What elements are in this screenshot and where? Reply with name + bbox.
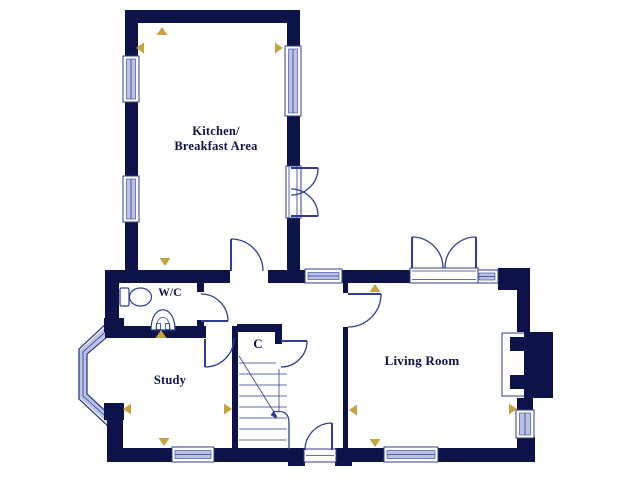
kitchen-french-doors-icon	[286, 166, 318, 218]
living-east-wall	[517, 398, 533, 411]
living-bottom-window-icon	[384, 447, 438, 462]
dimension-arrow-left-icon	[349, 405, 357, 416]
room-label-wc: W/C	[150, 286, 190, 301]
basin-icon	[151, 310, 175, 330]
room-label-study: Study	[140, 373, 200, 388]
fireplace-icon	[502, 332, 553, 398]
floor-plan: Kitchen/ Breakfast Area W/C Study C Livi…	[0, 0, 640, 480]
dimension-arrow-right-icon	[224, 404, 232, 415]
kitchen-west-wall	[125, 222, 138, 270]
living-sidelight-window-icon	[476, 270, 498, 283]
living-ne-corner	[498, 268, 530, 290]
kitchen-window-west-upper-icon	[123, 56, 139, 102]
study-door-icon	[205, 338, 234, 367]
study-window-icon	[172, 447, 214, 462]
cupboard-top-wall	[237, 324, 282, 332]
kitchen-window-east-icon	[285, 46, 301, 116]
kitchen-window-west-lower-icon	[123, 176, 139, 222]
stairs-icon	[239, 356, 289, 450]
living-north-wall	[342, 270, 412, 283]
windows	[123, 46, 534, 462]
toilet-icon	[120, 288, 152, 306]
dimension-arrow-down-icon	[160, 258, 171, 266]
wc-door-icon	[201, 294, 228, 321]
kitchen-east-wall	[287, 116, 300, 166]
room-label-cupboard: C	[248, 336, 268, 351]
kitchen-west-wall	[125, 102, 138, 176]
cupboard-door-icon	[281, 341, 307, 367]
cupboard-east-wall	[275, 332, 282, 344]
room-label-kitchen: Kitchen/ Breakfast Area	[153, 124, 279, 154]
hall-east-wall	[343, 327, 348, 448]
kitchen-east-wall	[287, 23, 300, 46]
living-room-door-icon	[348, 294, 381, 327]
bay-corner-south	[104, 403, 124, 420]
bottom-wall	[437, 448, 535, 462]
wc-west-wall	[105, 283, 119, 318]
kitchen-label-line1: Kitchen/	[153, 124, 279, 139]
bay-window-icon	[0, 0, 115, 427]
front-door-jamb	[288, 448, 305, 466]
hall-north-wall	[268, 270, 306, 283]
dimension-arrow-down-icon	[159, 438, 170, 446]
living-french-doors-icon	[410, 237, 478, 283]
hall-east-wall	[343, 283, 348, 293]
hall-window-icon	[305, 269, 342, 283]
dimension-arrow-down-icon	[370, 439, 381, 447]
dimension-arrow-up-icon	[370, 284, 381, 292]
kitchen-top-wall	[125, 10, 300, 23]
living-east-window-icon	[516, 410, 534, 438]
bottom-wall	[107, 448, 173, 462]
living-east-wall	[517, 290, 530, 332]
floor-plan-drawing	[0, 0, 640, 480]
room-label-living-room: Living Room	[372, 353, 472, 368]
dimension-arrow-left-icon	[123, 404, 131, 415]
kitchen-door-icon	[231, 239, 263, 271]
front-door-icon	[304, 423, 336, 462]
hall-north-wall	[105, 270, 230, 283]
dimension-arrow-right-icon	[275, 43, 283, 54]
front-door-jamb	[335, 448, 352, 466]
kitchen-west-wall	[125, 23, 138, 56]
study-west-wall	[107, 420, 123, 448]
kitchen-label-line2: Breakfast Area	[153, 139, 279, 154]
wc-east-wall	[197, 283, 204, 292]
dimension-arrow-up-icon	[157, 27, 168, 35]
bottom-wall	[352, 448, 385, 462]
bottom-wall	[213, 448, 288, 462]
kitchen-east-wall	[287, 218, 300, 270]
